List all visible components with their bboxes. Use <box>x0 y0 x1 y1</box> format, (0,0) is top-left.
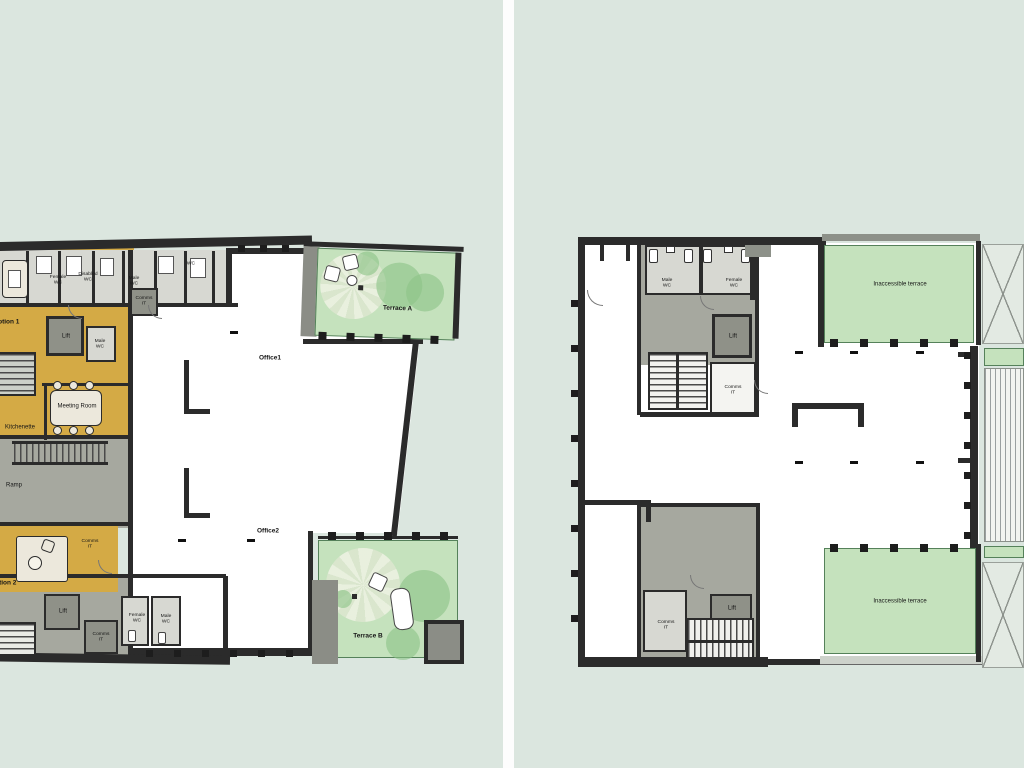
inaccessible-terrace-bottom: Inaccessible terrace <box>818 544 980 660</box>
wall <box>578 237 585 667</box>
column <box>950 339 958 347</box>
wall <box>858 403 864 427</box>
wc-fixture <box>649 249 658 263</box>
wall <box>578 657 768 667</box>
wall <box>756 503 760 665</box>
column <box>964 442 971 449</box>
inaccessible-terrace-top: Inaccessible terrace <box>818 241 980 347</box>
wc-fixture <box>703 249 712 263</box>
room-label: Female WC <box>723 278 744 289</box>
wc-fixture <box>684 249 693 263</box>
wall <box>792 403 798 427</box>
column <box>571 435 578 442</box>
terrace-label: Inaccessible terrace <box>855 282 945 289</box>
roof-void <box>982 244 1024 344</box>
column <box>950 544 958 552</box>
column <box>964 472 971 479</box>
wall-stub <box>600 243 604 261</box>
sink <box>724 246 733 253</box>
column-marker <box>916 461 924 464</box>
room-label: Lift <box>721 606 743 613</box>
column <box>890 544 898 552</box>
stair-landing <box>686 640 754 643</box>
service-block <box>745 243 771 257</box>
wall <box>976 241 981 345</box>
column <box>860 544 868 552</box>
column-marker <box>850 351 858 354</box>
wall <box>640 412 759 417</box>
roof-void <box>982 562 1024 668</box>
wall-stub <box>626 243 630 261</box>
column <box>571 480 578 487</box>
column-marker <box>795 461 803 464</box>
wall <box>637 243 641 415</box>
column-marker <box>850 461 858 464</box>
walkway-band <box>820 656 982 665</box>
wall <box>976 544 981 662</box>
parapet <box>822 234 980 241</box>
column <box>571 300 578 307</box>
wall <box>637 503 641 665</box>
column <box>571 525 578 532</box>
column <box>830 544 838 552</box>
column <box>571 570 578 577</box>
stair-rail <box>676 352 679 410</box>
planter-strip <box>984 348 1024 366</box>
column <box>920 544 928 552</box>
column <box>920 339 928 347</box>
room-label: Male WC <box>658 278 676 289</box>
floor-plans-image: Terrace A Terrace B Reception 1 Female W… <box>0 0 1024 768</box>
wall <box>764 659 824 665</box>
louvre-walkway <box>984 368 1024 542</box>
room-label: Comms IT <box>722 385 743 396</box>
wall <box>640 503 758 507</box>
column <box>890 339 898 347</box>
terrace-label: Inaccessible terrace <box>855 599 945 606</box>
column <box>571 390 578 397</box>
wall <box>578 237 826 245</box>
column <box>571 615 578 622</box>
room-label: Lift <box>722 334 744 341</box>
sink <box>666 246 675 253</box>
column <box>860 339 868 347</box>
wall <box>792 403 864 409</box>
room-label: Comms IT <box>655 620 676 631</box>
column <box>830 339 838 347</box>
column-marker <box>916 351 924 354</box>
column <box>964 502 971 509</box>
column-marker <box>795 351 803 354</box>
wall <box>970 346 978 548</box>
planter-strip <box>984 546 1024 558</box>
terrace-lawn <box>824 245 974 343</box>
column <box>964 412 971 419</box>
column <box>571 345 578 352</box>
column <box>964 352 971 359</box>
column <box>964 532 971 539</box>
column <box>964 382 971 389</box>
floor-plan-right: Inaccessible terrace Inaccessible terrac… <box>0 0 1024 768</box>
